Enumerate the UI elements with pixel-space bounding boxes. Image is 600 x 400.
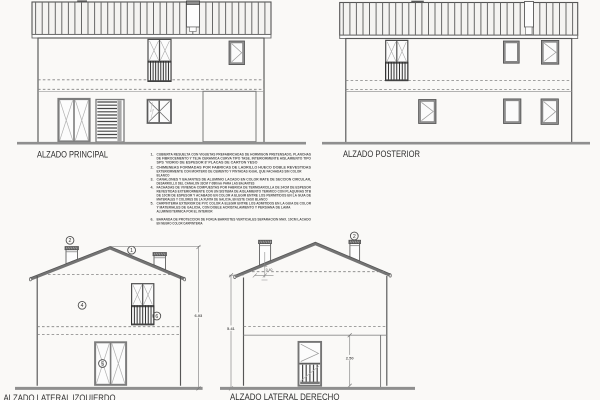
svg-text:4: 4 bbox=[81, 303, 84, 309]
svg-text:6.: 6. bbox=[151, 217, 154, 221]
svg-text:2.50: 2.50 bbox=[346, 356, 355, 361]
svg-text:0.40: 0.40 bbox=[266, 268, 273, 272]
svg-text:ALZADO LATERAL IZQUIERDO: ALZADO LATERAL IZQUIERDO bbox=[4, 393, 116, 400]
svg-text:6: 6 bbox=[155, 314, 158, 320]
svg-text:2.: 2. bbox=[151, 166, 154, 170]
svg-text:5.41: 5.41 bbox=[227, 326, 236, 331]
svg-text:ALZADO PRINCIPAL: ALZADO PRINCIPAL bbox=[37, 150, 108, 160]
svg-text:EN NEGRO COLOR CARPINTERIA: EN NEGRO COLOR CARPINTERIA bbox=[157, 221, 203, 225]
svg-text:ALZADO POSTERIOR: ALZADO POSTERIOR bbox=[343, 149, 420, 159]
svg-text:EXTERIORMENTE CON MORTERO DE C: EXTERIORMENTE CON MORTERO DE CEMENTO Y P… bbox=[157, 170, 302, 174]
svg-text:4.: 4. bbox=[151, 186, 154, 190]
svg-text:1.: 1. bbox=[151, 152, 154, 156]
svg-text:1: 1 bbox=[130, 248, 133, 254]
svg-text:3.: 3. bbox=[151, 178, 154, 182]
svg-text:5: 5 bbox=[101, 361, 104, 367]
svg-text:5.: 5. bbox=[151, 202, 154, 206]
svg-text:ALZADO LATERAL DERECHO: ALZADO LATERAL DERECHO bbox=[230, 392, 340, 400]
svg-text:6.03: 6.03 bbox=[195, 313, 204, 318]
svg-text:2: 2 bbox=[353, 234, 356, 240]
svg-text:ALUMINIO/TERMICA POR EL INTERI: ALUMINIO/TERMICA POR EL INTERIOR bbox=[157, 210, 213, 214]
svg-text:2: 2 bbox=[69, 238, 72, 244]
svg-text:SPS ‘VIDRIO DE ESPESOR 8’: SPS ‘VIDRIO DE ESPESOR 8’ PLACAS DE CART… bbox=[157, 160, 258, 164]
